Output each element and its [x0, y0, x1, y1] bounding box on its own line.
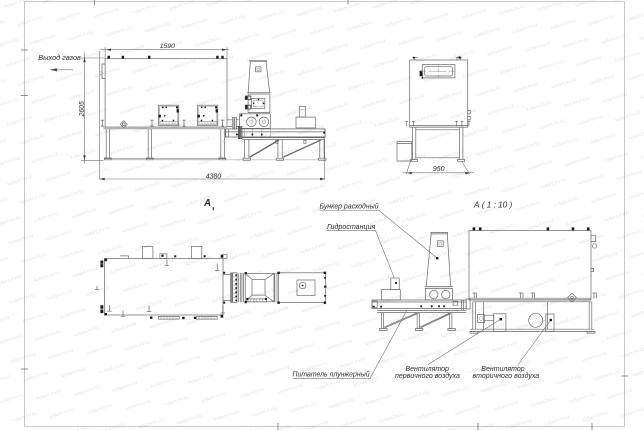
- svg-text:Вентилятор: Вентилятор: [481, 366, 524, 373]
- svg-text:Бункер расходный: Бункер расходный: [320, 203, 379, 211]
- svg-text:2605: 2605: [79, 101, 86, 117]
- svg-text:1590: 1590: [160, 43, 175, 50]
- svg-text:Вентилятор: Вентилятор: [406, 366, 449, 373]
- svg-text:950: 950: [433, 166, 445, 173]
- svg-text:4380: 4380: [206, 173, 222, 180]
- svg-text:А ( 1 : 10 ): А ( 1 : 10 ): [473, 200, 512, 209]
- svg-text:Выход газов: Выход газов: [38, 53, 81, 62]
- svg-text:вторичного воздуха: вторичного воздуха: [473, 372, 540, 380]
- svg-text:Питатель плунжерный: Питатель плунжерный: [293, 371, 370, 379]
- svg-text:первичного воздуха: первичного воздуха: [395, 372, 460, 380]
- svg-text:А: А: [203, 198, 211, 209]
- svg-text:Гидростанция: Гидростанция: [327, 223, 376, 231]
